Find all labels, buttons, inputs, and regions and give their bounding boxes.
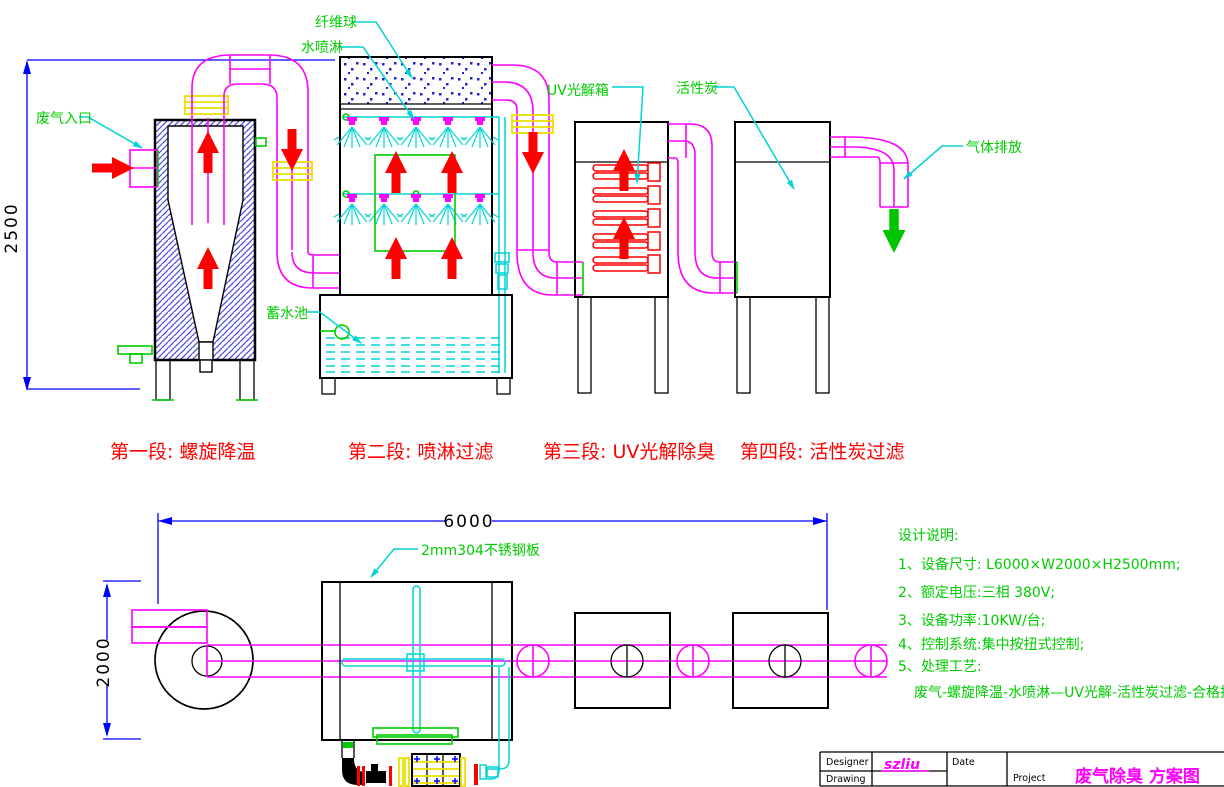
spray-box — [334, 57, 509, 373]
plate-label: 2mm304不锈钢板 — [421, 543, 540, 559]
project-label: Project — [1013, 773, 1046, 784]
water-level-dashes — [326, 338, 506, 372]
stage4-caption: 第四段: 活性炭过滤 — [740, 441, 904, 463]
title-block: Designer Drawing szliu Date Project 废气除臭… — [820, 752, 1224, 787]
design-note-2: 2、额定电压:三相 380V; — [898, 585, 1055, 601]
water-tank — [320, 295, 512, 394]
activated-carbon-box — [735, 122, 830, 393]
design-notes: 设计说明: 1、设备尺寸: L6000×W2000×H2500mm; 2、额定电… — [898, 528, 1224, 701]
pump-assembly — [342, 667, 509, 786]
gas-discharge-arrow — [882, 209, 905, 253]
process-flow-text: 废气-螺旋降温-水喷淋—UV光解-活性炭过滤-合格排放 — [914, 685, 1224, 701]
dim-2000-text: 2000 — [94, 636, 114, 687]
stage3-caption: 第三段: UV光解除臭 — [543, 441, 715, 463]
design-notes-heading: 设计说明: — [898, 528, 959, 544]
date-label: Date — [952, 757, 975, 768]
design-note-1: 1、设备尺寸: L6000×W2000×H2500mm; — [898, 556, 1181, 573]
stage2-caption: 第二段: 喷淋过滤 — [348, 441, 493, 463]
design-note-3: 3、设备功率:10KW/台; — [898, 612, 1045, 629]
plate-label-group: 2mm304不锈钢板 — [371, 543, 540, 577]
waste-gas-inlet-label: 废气入口 — [36, 111, 92, 127]
pump-bolt-marks — [414, 756, 458, 784]
uv-box-label: UV光解箱 — [547, 83, 609, 99]
project-title: 废气除臭 方案图 — [1075, 766, 1200, 787]
dimension-2000: 2000 — [94, 581, 141, 739]
activated-carbon-label: 活性炭 — [676, 81, 718, 97]
cyclone-tower — [92, 96, 266, 400]
stage-captions: 第一段: 螺旋降温 第二段: 喷淋过滤 第三段: UV光解除臭 第四段: 活性炭… — [110, 441, 904, 463]
stage1-caption: 第一段: 螺旋降温 — [110, 441, 255, 463]
design-note-4: 4、控制系统:集中按扭式控制; — [898, 636, 1084, 653]
design-note-5: 5、处理工艺: — [898, 659, 982, 675]
outlet-duct — [830, 137, 908, 253]
dim-2500-text: 2500 — [2, 202, 22, 253]
water-spray-label: 水喷淋 — [301, 40, 343, 56]
fiber-ball-label: 纤维球 — [315, 15, 357, 31]
waste-gas-deodorization-drawing: 2500 — [0, 0, 1224, 787]
cad-drawing-canvas: 2500 — [0, 0, 1224, 787]
gas-discharge-label: 气体排放 — [966, 140, 1022, 156]
spray-nozzle-row-1 — [334, 117, 498, 148]
designer-label: Designer — [826, 757, 869, 768]
water-pool-label: 蓄水池 — [266, 306, 308, 322]
spray-nozzle-row-2 — [334, 194, 498, 225]
uv-photolysis-box — [575, 122, 668, 393]
drawing-label: Drawing — [826, 774, 866, 785]
duct-uv-to-carbon — [668, 124, 737, 293]
dim-6000-text: 6000 — [443, 512, 494, 532]
